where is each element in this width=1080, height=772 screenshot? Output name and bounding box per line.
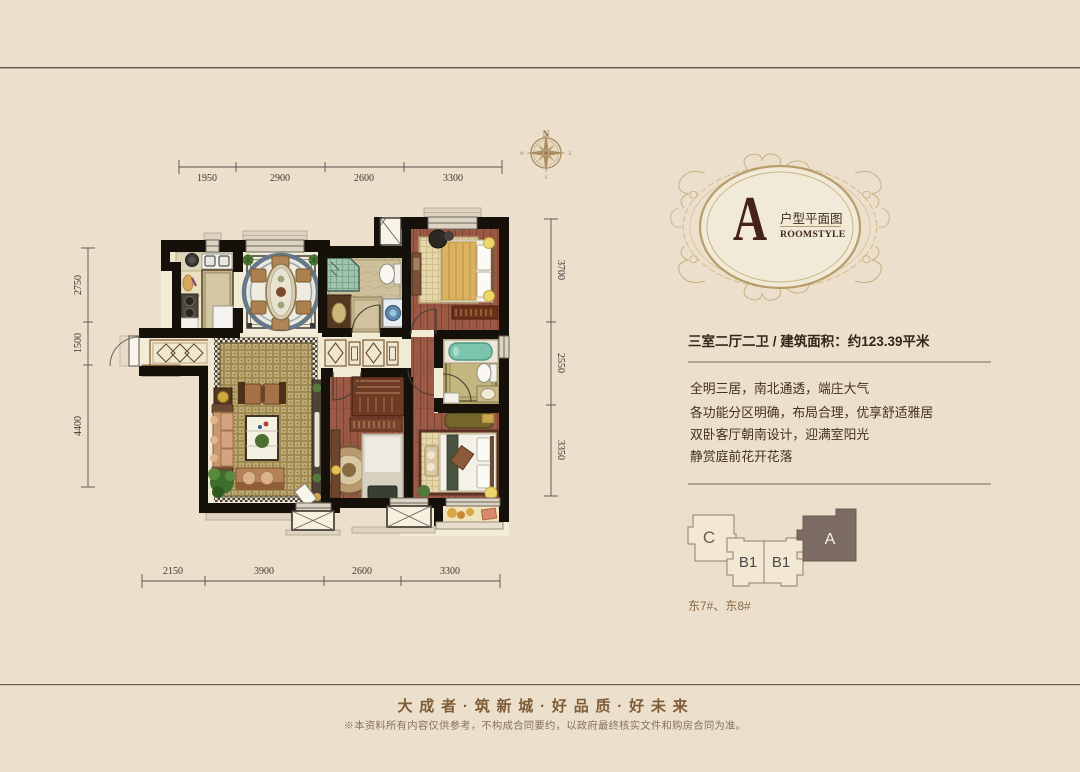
svg-text:东7#、东8#: 东7#、东8# — [688, 599, 751, 613]
svg-text:E: E — [568, 152, 571, 157]
svg-text:三室二厅二卫 / 建筑面积：约123.39平米: 三室二厅二卫 / 建筑面积：约123.39平米 — [688, 333, 930, 349]
svg-text:B1: B1 — [772, 554, 790, 571]
svg-text:3700: 3700 — [555, 260, 566, 280]
svg-text:双卧客厅朝南设计，迎满室阳光: 双卧客厅朝南设计，迎满室阳光 — [690, 427, 869, 442]
svg-text:户型平面图: 户型平面图 — [780, 211, 843, 226]
svg-text:B1: B1 — [739, 554, 757, 571]
svg-text:A: A — [733, 184, 767, 254]
svg-text:ROOMSTYLE: ROOMSTYLE — [780, 229, 846, 240]
svg-text:2600: 2600 — [352, 566, 372, 577]
svg-text:大成者·筑新城·好品质·好未来: 大成者·筑新城·好品质·好未来 — [398, 697, 695, 715]
svg-text:2150: 2150 — [163, 566, 183, 577]
svg-text:※本资料所有内容仅供参考，不构成合同要约，以政府最终核实文件: ※本资料所有内容仅供参考，不构成合同要约，以政府最终核实文件和购房合同为准。 — [344, 719, 747, 732]
svg-text:W: W — [520, 152, 525, 157]
svg-text:A: A — [825, 531, 836, 548]
svg-text:3900: 3900 — [254, 566, 274, 577]
svg-text:S: S — [545, 176, 548, 181]
svg-text:2600: 2600 — [354, 173, 374, 184]
svg-text:3300: 3300 — [440, 566, 460, 577]
svg-text:1950: 1950 — [197, 173, 217, 184]
svg-text:3300: 3300 — [443, 173, 463, 184]
svg-text:4400: 4400 — [73, 416, 84, 436]
svg-text:2900: 2900 — [270, 173, 290, 184]
svg-text:N: N — [543, 129, 550, 139]
svg-text:全明三居，南北通透，端庄大气: 全明三居，南北通透，端庄大气 — [690, 381, 869, 396]
svg-text:C: C — [703, 528, 715, 547]
svg-text:各功能分区明确，布局合理，优享舒适雅居: 各功能分区明确，布局合理，优享舒适雅居 — [690, 405, 933, 420]
svg-text:2750: 2750 — [73, 275, 84, 295]
svg-text:1500: 1500 — [73, 333, 84, 353]
svg-text:静赏庭前花开花落: 静赏庭前花开花落 — [690, 449, 793, 464]
svg-text:3350: 3350 — [555, 440, 566, 460]
svg-text:2550: 2550 — [555, 353, 566, 373]
